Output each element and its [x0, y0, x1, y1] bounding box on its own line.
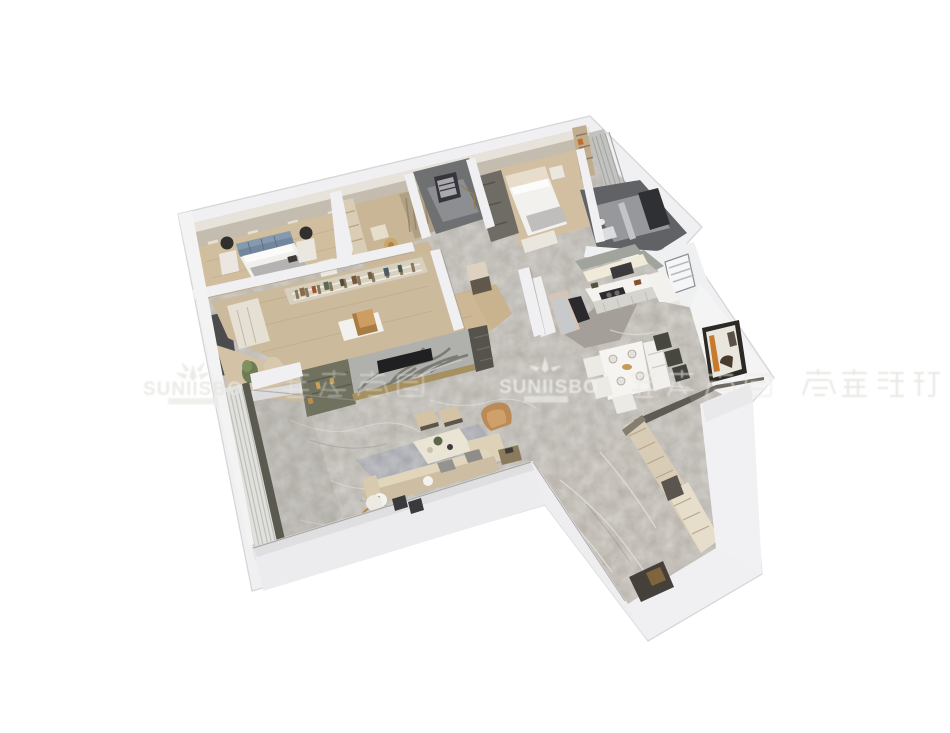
svg-text:SUNIISBO: SUNIISBO	[499, 377, 599, 398]
svg-text:SUNIISBO: SUNIISBO	[143, 379, 243, 400]
